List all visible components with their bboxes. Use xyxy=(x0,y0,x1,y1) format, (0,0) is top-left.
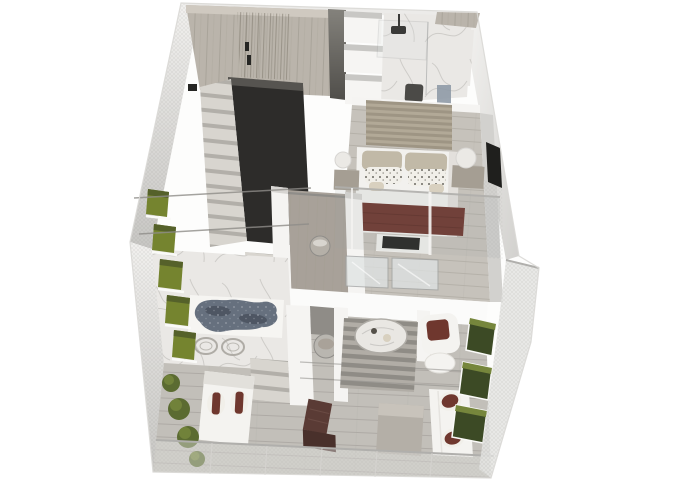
bedside-lamp xyxy=(335,152,351,168)
tub-niche xyxy=(310,306,335,336)
shrub-highlight xyxy=(164,375,174,385)
basket-top xyxy=(313,240,327,247)
bedside-lamp xyxy=(456,148,476,168)
nightstand xyxy=(451,165,484,189)
wall-tv xyxy=(486,142,502,188)
lower-wall-segment xyxy=(286,305,314,406)
round-marble-table xyxy=(355,319,407,353)
bath-stool xyxy=(405,84,424,103)
floorplan-render xyxy=(0,0,680,486)
glass-pane xyxy=(346,256,388,288)
railing-glass-tint xyxy=(335,188,500,258)
table-decor xyxy=(371,328,377,334)
tub-inner xyxy=(318,339,334,350)
wall-socket-mark xyxy=(188,84,197,91)
shrub-highlight xyxy=(179,427,191,439)
lower-staircase xyxy=(250,358,290,403)
closet-divider-panel xyxy=(328,9,346,100)
table-decor xyxy=(383,334,391,342)
headboard-slats xyxy=(366,100,452,150)
wardrobe-handle xyxy=(247,55,251,65)
armchair-maroon-cushion xyxy=(426,319,450,341)
hanging-clothes xyxy=(237,12,290,80)
chaise-lounger xyxy=(198,371,255,446)
pillow-maroon-stripe xyxy=(235,391,244,413)
pillow-floral-pattern xyxy=(365,167,402,184)
cabinet-stack xyxy=(344,11,384,106)
bathroom xyxy=(377,12,480,107)
pillow-maroon-stripe xyxy=(212,392,221,414)
shower-head xyxy=(391,26,406,34)
marble-wall-panel xyxy=(432,28,474,86)
bolster-pillow xyxy=(429,184,444,193)
glass-pane xyxy=(392,258,438,290)
wardrobe-handle xyxy=(245,42,249,51)
floorplan-svg xyxy=(0,0,680,486)
pillow-floral-pattern xyxy=(408,169,446,186)
shrub-highlight xyxy=(170,399,182,411)
